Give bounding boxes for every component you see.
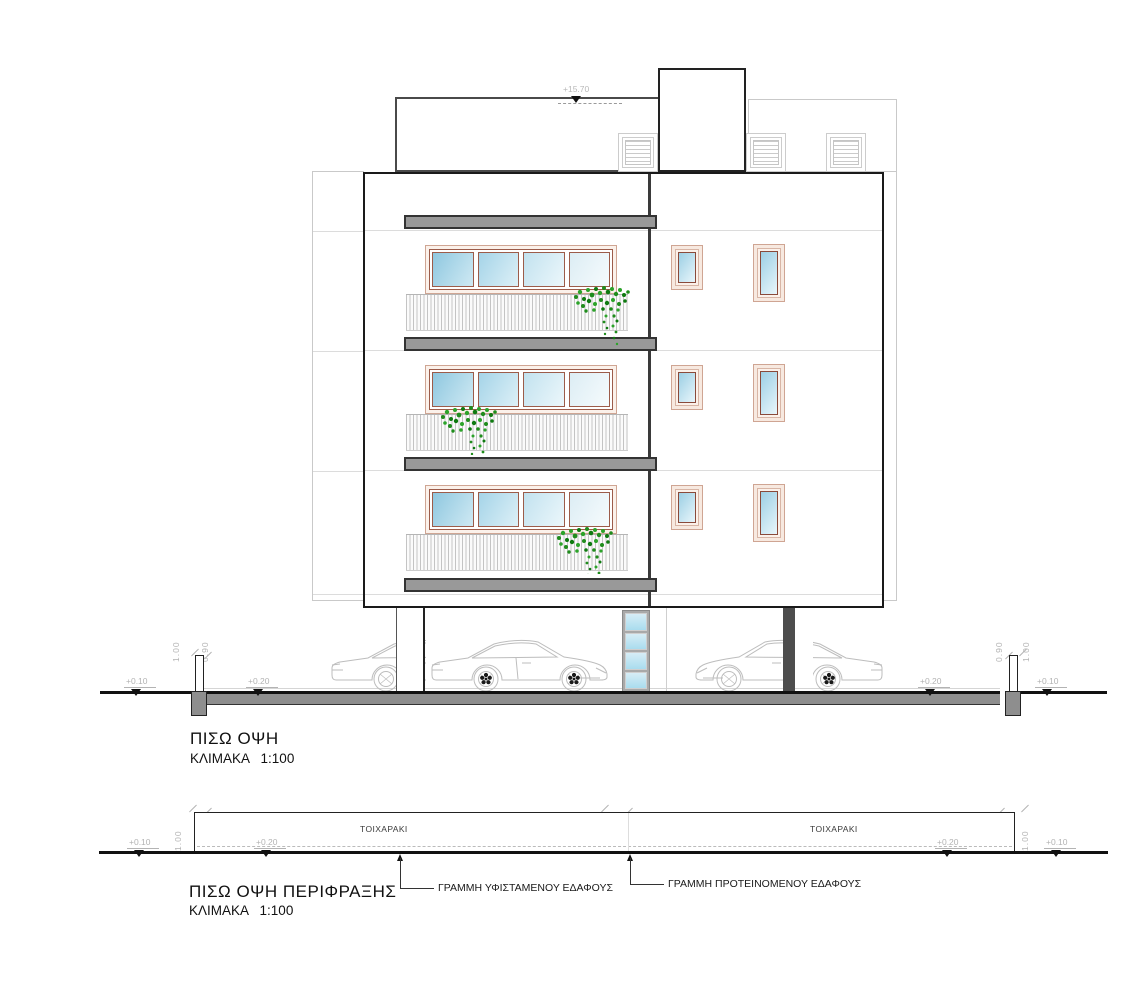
stair-bulkhead <box>658 68 746 172</box>
level-marker-icon <box>134 850 144 857</box>
level-marker-icon <box>1051 850 1061 857</box>
stairwell-glass-blocks <box>622 610 650 692</box>
dimension-label: 1.00 <box>1022 622 1031 662</box>
tall-window <box>753 484 785 542</box>
dimension-label: 1.00 <box>1021 813 1030 851</box>
roof-louver-shutter <box>746 133 786 172</box>
balcony-slab <box>404 578 657 592</box>
roof-louver-shutter <box>826 133 866 172</box>
dimension-label: 0.90 <box>995 626 1004 662</box>
level-label: +0.10 <box>124 676 156 688</box>
balcony-slab <box>404 215 657 229</box>
level-marker-icon <box>925 689 935 696</box>
pilotis-column <box>396 605 425 692</box>
roof-level-marker-icon <box>571 96 581 103</box>
callout-label: ΓΡΑΜΜΗ ΥΦΙΣΤΑΜΕΝΟΥ ΕΔΑΦΟΥΣ <box>438 882 613 894</box>
small-window <box>671 245 703 290</box>
roof-level-dashed-line <box>558 103 622 104</box>
architectural-drawing-sheet: +15.70 <box>0 0 1141 981</box>
fence-footing <box>191 691 207 716</box>
level-label: +0.10 <box>127 837 159 849</box>
level-marker-icon <box>1042 689 1052 696</box>
balcony-plant <box>553 524 615 574</box>
fence-wall-label: ΤΟΙΧΑΡΑΚΙ <box>810 824 858 834</box>
drawing-scale: ΚΛΙΜΑΚΑ 1:100 <box>189 903 293 918</box>
level-label: +0.20 <box>254 837 286 849</box>
floor-line <box>363 230 884 231</box>
parking-slab-section <box>203 691 1000 705</box>
roof-louver-shutter <box>618 133 658 172</box>
callout-label: ΓΡΑΜΜΗ ΠΡΟΤΕΙΝΟΜΕΝΟΥ ΕΔΑΦΟΥΣ <box>668 878 861 890</box>
small-window <box>671 365 703 410</box>
level-marker-icon <box>261 850 271 857</box>
level-marker-icon <box>131 689 141 696</box>
tall-window <box>753 244 785 302</box>
level-marker: +0.20 <box>935 832 967 857</box>
level-label: +0.20 <box>246 676 278 688</box>
right-side-wall <box>883 171 897 601</box>
dim-tick <box>1021 805 1029 813</box>
fence-post <box>195 655 204 692</box>
callout-leader <box>400 888 434 889</box>
building-facade <box>363 172 884 608</box>
balcony-slab <box>404 457 657 471</box>
dimension-label: 1.00 <box>172 622 181 662</box>
callout-leader <box>400 858 401 889</box>
balcony-plant <box>570 283 632 353</box>
pilotis-column <box>783 605 795 692</box>
level-marker-icon <box>942 850 952 857</box>
level-label: +0.10 <box>1044 837 1076 849</box>
left-side-wall <box>312 171 364 601</box>
level-marker: +0.10 <box>1035 671 1067 696</box>
level-marker-icon <box>253 689 263 696</box>
tall-window <box>753 364 785 422</box>
level-marker: +0.20 <box>918 671 950 696</box>
callout-leader <box>630 858 631 885</box>
level-marker: +0.10 <box>127 832 159 857</box>
fence-wall-label: ΤΟΙΧΑΡΑΚΙ <box>360 824 408 834</box>
roof-level-label: +15.70 <box>563 84 589 94</box>
level-marker: +0.10 <box>124 671 156 696</box>
small-window <box>671 485 703 530</box>
car-center <box>432 640 607 691</box>
level-label: +0.10 <box>1035 676 1067 688</box>
drawing-title: ΠΙΣΩ ΟΨΗ ΠΕΡΙΦΡΑΞΗΣ <box>189 882 396 902</box>
level-marker: +0.20 <box>254 832 286 857</box>
fence-wall: ΤΟΙΧΑΡΑΚΙ ΤΟΙΧΑΡΑΚΙ <box>194 812 1015 851</box>
fence-wall-joint <box>628 813 629 851</box>
drawing-title: ΠΙΣΩ ΟΨΗ <box>190 729 279 749</box>
existing-ground-dashed-line <box>197 846 1012 847</box>
drawing-scale: ΚΛΙΜΑΚΑ 1:100 <box>190 751 294 766</box>
callout-leader <box>630 884 664 885</box>
level-label: +0.20 <box>935 837 967 849</box>
level-marker: +0.20 <box>246 671 278 696</box>
level-label: +0.20 <box>918 676 950 688</box>
level-marker: +0.10 <box>1044 832 1076 857</box>
floor-line <box>363 594 884 595</box>
stairwell-wall-edge <box>666 608 667 692</box>
fence-footing <box>1005 691 1021 716</box>
facade-recess-line <box>648 172 651 608</box>
fence-post <box>1009 655 1018 692</box>
balcony-plant <box>437 403 499 455</box>
dimension-label: 1.00 <box>174 813 183 851</box>
